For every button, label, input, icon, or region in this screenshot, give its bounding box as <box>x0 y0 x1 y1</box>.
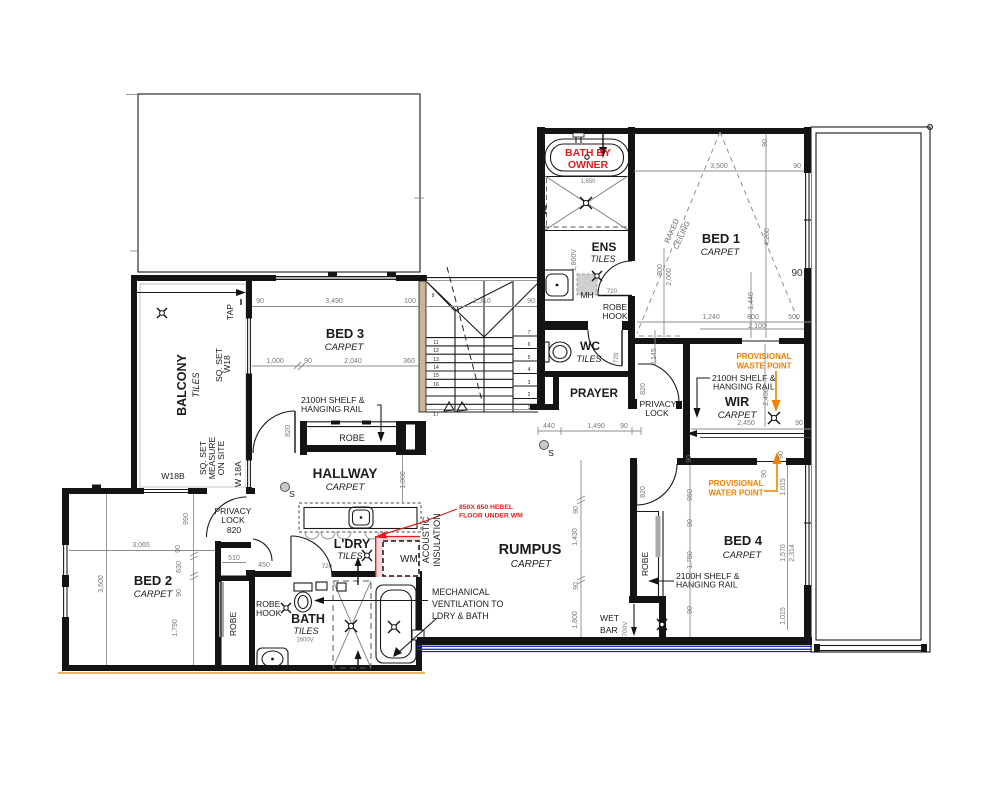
svg-text:1,750: 1,750 <box>687 551 694 569</box>
svg-text:90: 90 <box>686 455 693 463</box>
svg-text:1,440: 1,440 <box>748 292 755 310</box>
svg-text:800: 800 <box>747 314 759 321</box>
svg-text:HALLWAY: HALLWAY <box>313 466 378 481</box>
svg-text:HANGING RAIL: HANGING RAIL <box>301 404 363 414</box>
svg-text:W18B: W18B <box>161 471 185 481</box>
svg-text:7: 7 <box>528 330 531 336</box>
svg-text:1,000: 1,000 <box>266 358 284 365</box>
svg-text:1,000: 1,000 <box>400 471 407 489</box>
svg-text:90: 90 <box>256 298 264 305</box>
svg-text:S: S <box>548 448 554 458</box>
svg-text:OWNER: OWNER <box>568 159 609 171</box>
svg-text:90: 90 <box>176 589 183 597</box>
svg-text:BATH: BATH <box>291 612 325 626</box>
svg-text:16: 16 <box>433 382 439 388</box>
svg-text:2: 2 <box>528 392 531 398</box>
svg-text:90: 90 <box>687 519 694 527</box>
svg-text:90: 90 <box>778 451 785 459</box>
svg-text:13: 13 <box>433 357 439 363</box>
svg-text:BATH BY: BATH BY <box>565 147 611 159</box>
svg-text:2,450: 2,450 <box>737 420 755 427</box>
svg-text:1,850: 1,850 <box>580 179 596 185</box>
svg-text:90: 90 <box>304 358 312 365</box>
svg-text:TILES: TILES <box>191 372 201 397</box>
svg-text:TILES: TILES <box>576 354 601 364</box>
svg-text:820: 820 <box>227 525 242 535</box>
svg-text:2,450: 2,450 <box>763 388 770 406</box>
svg-text:WASTE POINT: WASTE POINT <box>736 362 791 371</box>
svg-text:450: 450 <box>258 562 270 569</box>
svg-text:BALCONY: BALCONY <box>175 353 189 415</box>
svg-text:12: 12 <box>433 348 439 354</box>
svg-text:3,500: 3,500 <box>710 163 728 170</box>
svg-text:1,015: 1,015 <box>780 478 787 496</box>
svg-text:15: 15 <box>433 373 439 379</box>
svg-text:90: 90 <box>791 268 803 279</box>
svg-text:BED 2: BED 2 <box>134 573 172 588</box>
svg-text:HOOK: HOOK <box>256 608 282 618</box>
svg-text:630: 630 <box>176 561 183 573</box>
svg-text:11: 11 <box>433 340 438 346</box>
svg-text:3,065: 3,065 <box>132 542 150 549</box>
svg-text:720: 720 <box>322 563 333 570</box>
svg-text:BAR: BAR <box>600 625 618 635</box>
svg-text:FLOOR UNDER WM: FLOOR UNDER WM <box>459 513 523 520</box>
svg-text:90: 90 <box>795 420 803 427</box>
svg-text:WIR: WIR <box>725 395 749 409</box>
svg-text:720: 720 <box>607 288 618 295</box>
svg-text:W18: W18 <box>222 355 232 373</box>
svg-text:TILES: TILES <box>337 551 362 561</box>
svg-text:ACOUSTIC: ACOUSTIC <box>421 516 431 563</box>
svg-text:LOCK: LOCK <box>221 515 245 525</box>
svg-text:PRAYER: PRAYER <box>570 386 619 400</box>
svg-text:PROVISIONAL: PROVISIONAL <box>736 352 791 361</box>
svg-text:CARPET: CARPET <box>326 482 366 493</box>
svg-text:90: 90 <box>687 606 694 614</box>
svg-text:1,790: 1,790 <box>172 619 179 637</box>
svg-text:1,015: 1,015 <box>780 607 787 625</box>
svg-text:720: 720 <box>613 352 620 363</box>
svg-text:CARPET: CARPET <box>701 247 741 258</box>
svg-text:INSULATION: INSULATION <box>432 513 442 566</box>
svg-text:2,040: 2,040 <box>344 358 362 365</box>
svg-text:LOCK: LOCK <box>645 408 669 418</box>
svg-text:BED 1: BED 1 <box>702 231 740 246</box>
svg-text:CARPET: CARPET <box>723 550 763 561</box>
svg-text:ENS: ENS <box>592 240 617 254</box>
svg-text:360: 360 <box>403 358 415 365</box>
svg-text:W 18A: W 18A <box>233 461 243 487</box>
svg-text:90: 90 <box>761 470 768 478</box>
svg-text:820: 820 <box>285 425 292 437</box>
svg-text:90: 90 <box>175 545 182 553</box>
svg-text:2,145: 2,145 <box>651 348 658 366</box>
svg-text:4,200: 4,200 <box>764 228 771 246</box>
svg-text:BED 4: BED 4 <box>724 533 763 548</box>
svg-text:HOOK: HOOK <box>602 311 628 321</box>
svg-text:2,314: 2,314 <box>789 544 796 562</box>
svg-text:820: 820 <box>640 383 647 395</box>
svg-text:MECHANICAL: MECHANICAL <box>432 587 490 597</box>
svg-text:510: 510 <box>228 555 240 562</box>
svg-text:S: S <box>289 489 295 499</box>
svg-text:L'DRY: L'DRY <box>334 537 371 551</box>
svg-text:1600V: 1600V <box>296 638 313 644</box>
svg-text:2,310: 2,310 <box>473 298 491 305</box>
svg-text:LDRY & BATH: LDRY & BATH <box>432 611 489 621</box>
svg-text:CARPET: CARPET <box>325 342 365 353</box>
svg-text:ON SITE: ON SITE <box>216 441 226 476</box>
svg-text:850X 850 HEBEL: 850X 850 HEBEL <box>459 504 513 511</box>
svg-text:PROVISIONAL: PROVISIONAL <box>708 479 763 488</box>
svg-text:WET: WET <box>600 613 620 623</box>
svg-text:440: 440 <box>543 423 555 430</box>
svg-text:WM: WM <box>400 554 418 565</box>
svg-text:4: 4 <box>528 367 531 373</box>
svg-text:90: 90 <box>793 163 801 170</box>
svg-text:3,490: 3,490 <box>325 298 343 305</box>
svg-text:990: 990 <box>183 513 190 525</box>
svg-text:WC: WC <box>580 339 600 353</box>
svg-text:CARPET: CARPET <box>134 589 174 600</box>
svg-text:1,800: 1,800 <box>572 611 579 629</box>
svg-text:17: 17 <box>433 412 439 418</box>
svg-text:TAP: TAP <box>225 304 235 320</box>
svg-text:950: 950 <box>687 489 694 501</box>
svg-text:800: 800 <box>657 264 664 276</box>
svg-text:HANGING RAIL: HANGING RAIL <box>676 580 738 590</box>
svg-text:820: 820 <box>640 486 647 498</box>
svg-text:TILES: TILES <box>293 626 318 636</box>
svg-text:MH: MH <box>580 290 593 300</box>
svg-text:700V: 700V <box>622 621 629 637</box>
svg-text:14: 14 <box>433 365 439 371</box>
svg-text:RUMPUS: RUMPUS <box>499 542 562 558</box>
svg-text:BED 3: BED 3 <box>326 326 364 341</box>
svg-text:CARPET: CARPET <box>511 559 552 570</box>
svg-text:5: 5 <box>528 355 531 361</box>
svg-text:3: 3 <box>528 380 531 386</box>
svg-text:2,060: 2,060 <box>666 268 673 286</box>
svg-text:ROBE: ROBE <box>339 433 365 443</box>
svg-text:90: 90 <box>762 139 769 147</box>
svg-text:1,800V: 1,800V <box>571 249 578 272</box>
svg-text:1,490: 1,490 <box>587 423 605 430</box>
svg-text:9: 9 <box>432 293 435 299</box>
svg-text:2,100: 2,100 <box>748 323 766 330</box>
svg-text:WATER POINT: WATER POINT <box>709 489 764 498</box>
svg-text:100: 100 <box>404 298 416 305</box>
svg-text:6: 6 <box>528 342 531 348</box>
svg-text:1,240: 1,240 <box>702 314 720 321</box>
svg-text:90: 90 <box>620 423 628 430</box>
svg-text:ROBE: ROBE <box>228 612 238 637</box>
svg-text:TILES: TILES <box>590 254 615 264</box>
svg-text:1,430: 1,430 <box>572 528 579 546</box>
svg-text:3,600: 3,600 <box>98 575 105 593</box>
svg-text:90: 90 <box>573 506 580 514</box>
svg-text:1,570: 1,570 <box>780 544 787 562</box>
svg-text:VENTILATION TO: VENTILATION TO <box>432 599 504 609</box>
svg-text:500: 500 <box>788 314 800 321</box>
svg-text:90: 90 <box>527 298 535 305</box>
svg-text:ROBE: ROBE <box>640 552 650 577</box>
